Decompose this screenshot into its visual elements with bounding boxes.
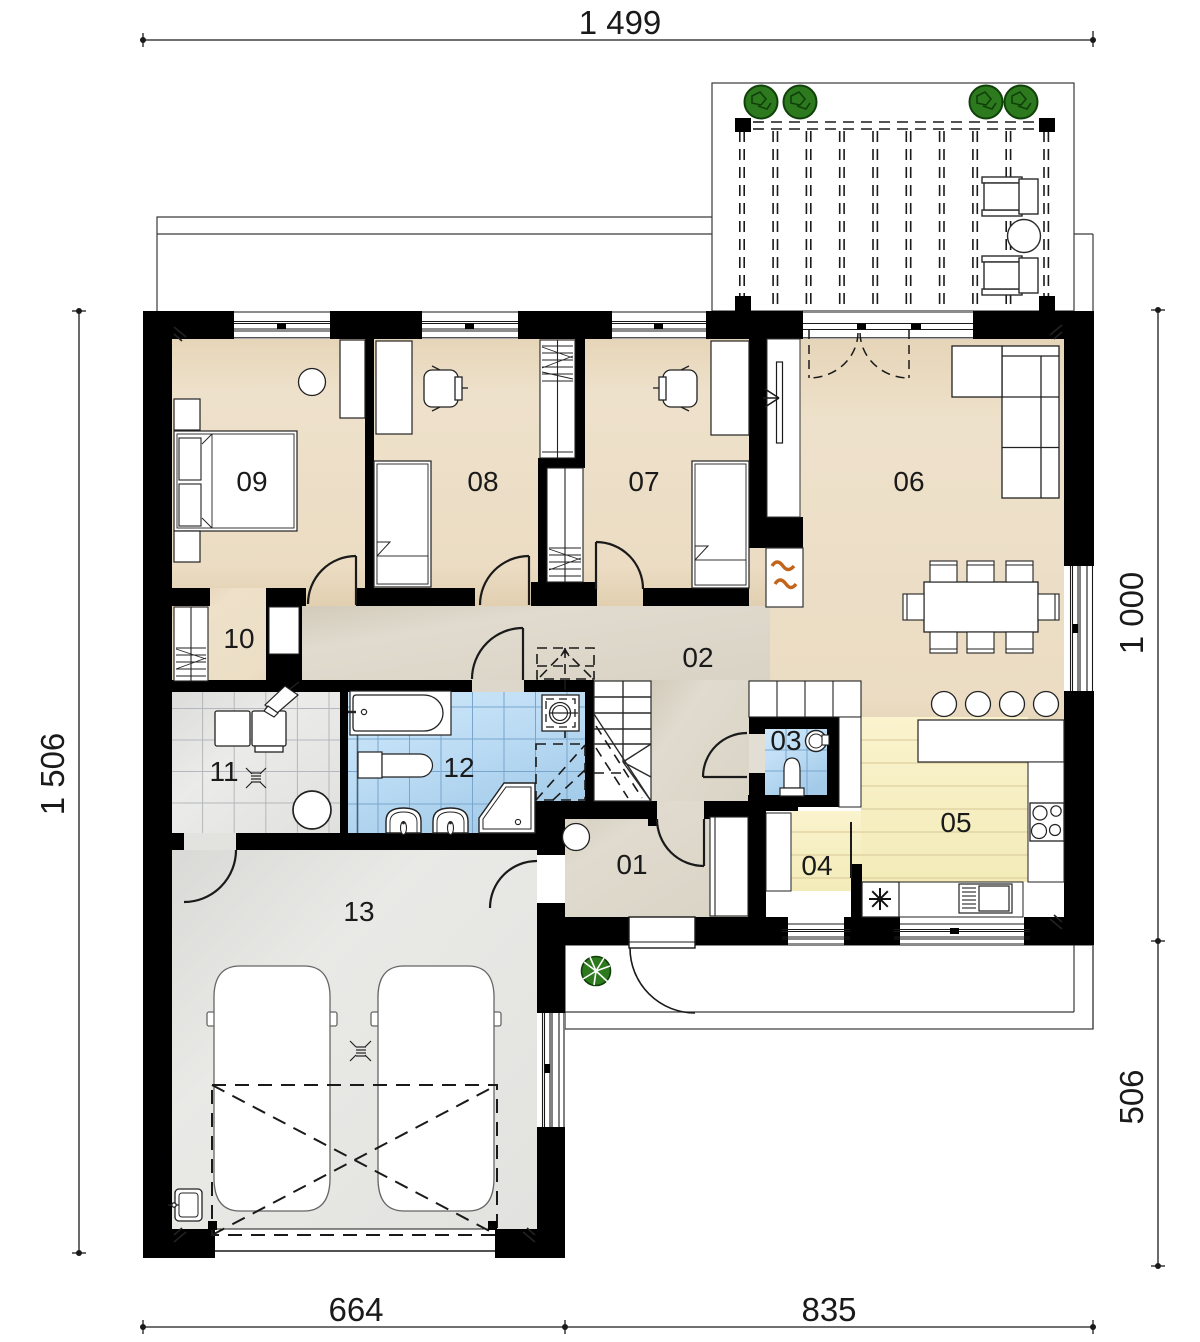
svg-text:07: 07 — [628, 466, 659, 497]
svg-text:1 499: 1 499 — [579, 4, 662, 41]
svg-text:01: 01 — [616, 849, 647, 880]
svg-text:06: 06 — [893, 466, 924, 497]
svg-text:13: 13 — [343, 896, 374, 927]
svg-text:12: 12 — [443, 752, 474, 783]
svg-text:09: 09 — [236, 466, 267, 497]
svg-text:506: 506 — [1113, 1069, 1150, 1124]
svg-text:664: 664 — [328, 1291, 383, 1328]
svg-text:03: 03 — [770, 725, 801, 756]
svg-text:1 000: 1 000 — [1113, 572, 1150, 655]
svg-text:11: 11 — [209, 756, 238, 787]
svg-text:05: 05 — [940, 807, 971, 838]
svg-text:10: 10 — [223, 623, 254, 654]
svg-text:1 506: 1 506 — [34, 733, 71, 816]
svg-text:02: 02 — [682, 642, 713, 673]
svg-text:835: 835 — [801, 1291, 856, 1328]
svg-text:08: 08 — [467, 466, 498, 497]
svg-text:04: 04 — [801, 850, 832, 881]
